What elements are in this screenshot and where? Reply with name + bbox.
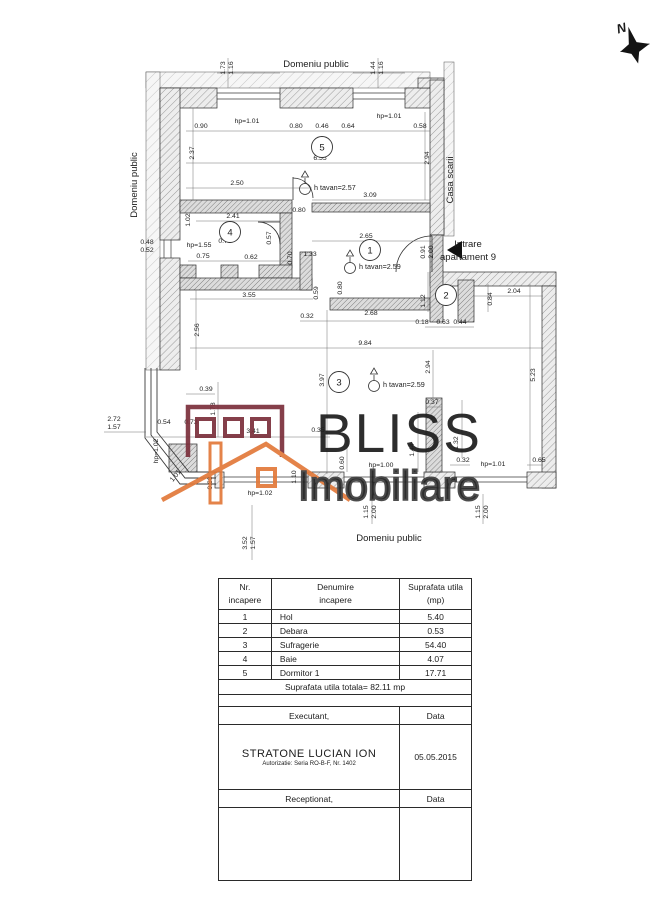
dim-label: 2.94 (425, 360, 432, 373)
dim-label: 0.75 (196, 253, 209, 260)
dim-label: 0.80 (337, 281, 344, 294)
executant-authorization: Autorizatie: Seria RO-B-F, Nr. 1402 (221, 761, 397, 767)
dim-label: 2.72 (107, 416, 120, 423)
dim-label: 0.80 (289, 123, 302, 130)
dim-label: 1.73 (220, 61, 227, 74)
dim-label: 2.37 (189, 146, 196, 159)
dim-label: 0.57 (266, 231, 273, 244)
room-number: 5 (319, 143, 324, 154)
room-nr: 3 (219, 638, 272, 652)
table-row: 2 Debara 0.53 (219, 624, 472, 638)
lamp-icon (369, 368, 380, 392)
receptionat-date-cell (400, 808, 472, 881)
receptionat-cell (219, 808, 400, 881)
entrance-label-line2: apartament 9 (440, 252, 496, 263)
table-row: 1 Hol 5.40 (219, 610, 472, 624)
ceiling-height-label: h tavan=2.57 (314, 183, 356, 192)
room-number: 1 (367, 246, 372, 257)
room-number: 3 (336, 378, 341, 389)
dim-label: hp=1.02 (248, 490, 273, 497)
dim-label: 2.41 (226, 213, 239, 220)
dim-label: 0.65 (532, 457, 545, 464)
dim-label: 0.18 (415, 319, 428, 326)
room-name: Dormitor 1 (271, 666, 399, 680)
entrance-label-line1: Intrare (454, 239, 481, 250)
total-row: Suprafata utila totala= 82.11 mp (219, 680, 472, 695)
dim-label: 2.50 (230, 180, 243, 187)
watermark-bliss-text: BLISS (316, 402, 482, 464)
dim-label: hp=1.01 (481, 461, 506, 468)
header-nr-incapere: Nr.incapere (219, 579, 272, 610)
room-nr: 4 (219, 652, 272, 666)
dim-label: 1.57 (107, 424, 120, 431)
dim-label: hp=1.02 (153, 438, 160, 463)
dim-label: 3.52 (242, 536, 249, 549)
dim-label: 5.23 (530, 368, 537, 381)
room-area: 5.40 (400, 610, 472, 624)
dim-label: 1.16 (378, 61, 385, 74)
executant-row: STRATONE LUCIAN ION Autorizatie: Seria R… (219, 725, 472, 790)
table-row: 4 Baie 4.07 (219, 652, 472, 666)
dim-label: hp=1.01 (377, 113, 402, 120)
dim-label: 1.33 (303, 251, 316, 258)
executant-label: Executant, (219, 707, 400, 725)
domeniu-public-left-label: Domeniu public (129, 152, 140, 218)
dim-label: 0.84 (487, 292, 494, 305)
floor-plan-page: 1.73 1.16 1.44 1.16 0.90 hp=1.01 0.80 0.… (0, 0, 672, 900)
domeniu-public-top-label: Domeniu public (283, 59, 349, 70)
data-label: Data (400, 707, 472, 725)
room-numbers: 5 4 1 2 3 (220, 137, 457, 393)
domeniu-public-bottom-label: Domeniu public (356, 533, 422, 544)
room-name: Debara (271, 624, 399, 638)
dim-label: 0.64 (341, 123, 354, 130)
lamp-icon (300, 171, 311, 195)
dim-label: 2.56 (194, 323, 201, 336)
watermark: BLISS Imobiliare (162, 402, 482, 509)
receptionat-row (219, 808, 472, 881)
compass: N (613, 15, 654, 67)
dim-label: 2.94 (424, 151, 431, 164)
watermark-imobiliare-text: Imobiliare (298, 462, 480, 509)
dim-label: 2.68 (364, 310, 377, 317)
dim-label: 2.65 (359, 233, 372, 240)
room-number: 2 (443, 291, 448, 302)
dim-label: 1.16 (228, 61, 235, 74)
dim-label: 0.70 (287, 251, 294, 264)
header-denumire: Denumireincapere (271, 579, 399, 610)
room-name: Sufragerie (271, 638, 399, 652)
room-number: 4 (227, 228, 232, 239)
floor-plan-drawing: 1.73 1.16 1.44 1.16 0.90 hp=1.01 0.80 0.… (0, 0, 672, 568)
header-suprafata: Suprafata utila(mp) (400, 579, 472, 610)
dim-label: 1.57 (250, 536, 257, 549)
dim-label: 1.12 (420, 294, 427, 307)
room-nr: 2 (219, 624, 272, 638)
ceiling-height-label: h tavan=2.59 (383, 380, 425, 389)
ceiling-height-label: h tavan=2.59 (359, 262, 401, 271)
dim-label: 0.48 (140, 239, 153, 246)
table-row: 3 Sufragerie 54.40 (219, 638, 472, 652)
dim-label: 3.97 (319, 373, 326, 386)
dim-label: 0.59 (313, 286, 320, 299)
dim-label: 2.00 (483, 505, 490, 518)
dim-label: 1.02 (185, 213, 192, 226)
executant-header-row: Executant, Data (219, 707, 472, 725)
lamp-icon (345, 250, 356, 274)
room-area: 54.40 (400, 638, 472, 652)
room-name: Baie (271, 652, 399, 666)
dim-label: 2.04 (507, 288, 520, 295)
date-value: 05.05.2015 (400, 725, 472, 790)
dim-label: 0.44 (453, 319, 466, 326)
room-area: 4.07 (400, 652, 472, 666)
dim-label: hp=1.55 (187, 242, 212, 249)
dim-label: 0.91 (420, 245, 427, 258)
casa-scarii-label: Casa scarii (445, 157, 456, 204)
executant-cell: STRATONE LUCIAN ION Autorizatie: Seria R… (219, 725, 400, 790)
room-name: Hol (271, 610, 399, 624)
spacer-cell (219, 695, 472, 707)
dim-label: 3.09 (363, 192, 376, 199)
dim-label: 3.55 (242, 292, 255, 299)
dim-label: 0.58 (413, 123, 426, 130)
spacer-row (219, 695, 472, 707)
dim-label: 0.80 (292, 207, 305, 214)
dim-label: 0.90 (194, 123, 207, 130)
dim-label: 0.32 (300, 313, 313, 320)
total-area-value: Suprafata utila totala= 82.11 mp (219, 680, 472, 695)
surface-table: Nr.incapere Denumireincapere Suprafata u… (218, 578, 472, 881)
receptionat-header-row: Receptionat, Data (219, 790, 472, 808)
dim-label: hp=1.01 (235, 118, 260, 125)
logo-building-icon (188, 407, 282, 457)
dim-label: 2.00 (428, 245, 435, 258)
dim-label: 0.54 (157, 419, 170, 426)
compass-north-label: N (615, 19, 629, 36)
dim-label: 1.44 (370, 61, 377, 74)
dim-label: 0.62 (244, 254, 257, 261)
executant-name: STRATONE LUCIAN ION (221, 748, 397, 760)
room-nr: 5 (219, 666, 272, 680)
dim-label: 0.39 (199, 386, 212, 393)
table-row: 5 Dormitor 1 17.71 (219, 666, 472, 680)
room-area: 17.71 (400, 666, 472, 680)
dim-label: 9.84 (358, 340, 371, 347)
room-area: 0.53 (400, 624, 472, 638)
room-nr: 1 (219, 610, 272, 624)
dim-label: 0.46 (315, 123, 328, 130)
table-header-row: Nr.incapere Denumireincapere Suprafata u… (219, 579, 472, 610)
dim-label: 0.52 (140, 247, 153, 254)
dim-label: 1.10 (291, 470, 298, 483)
data-label-2: Data (400, 790, 472, 808)
receptionat-label: Receptionat, (219, 790, 400, 808)
dim-label: 0.63 (436, 319, 449, 326)
